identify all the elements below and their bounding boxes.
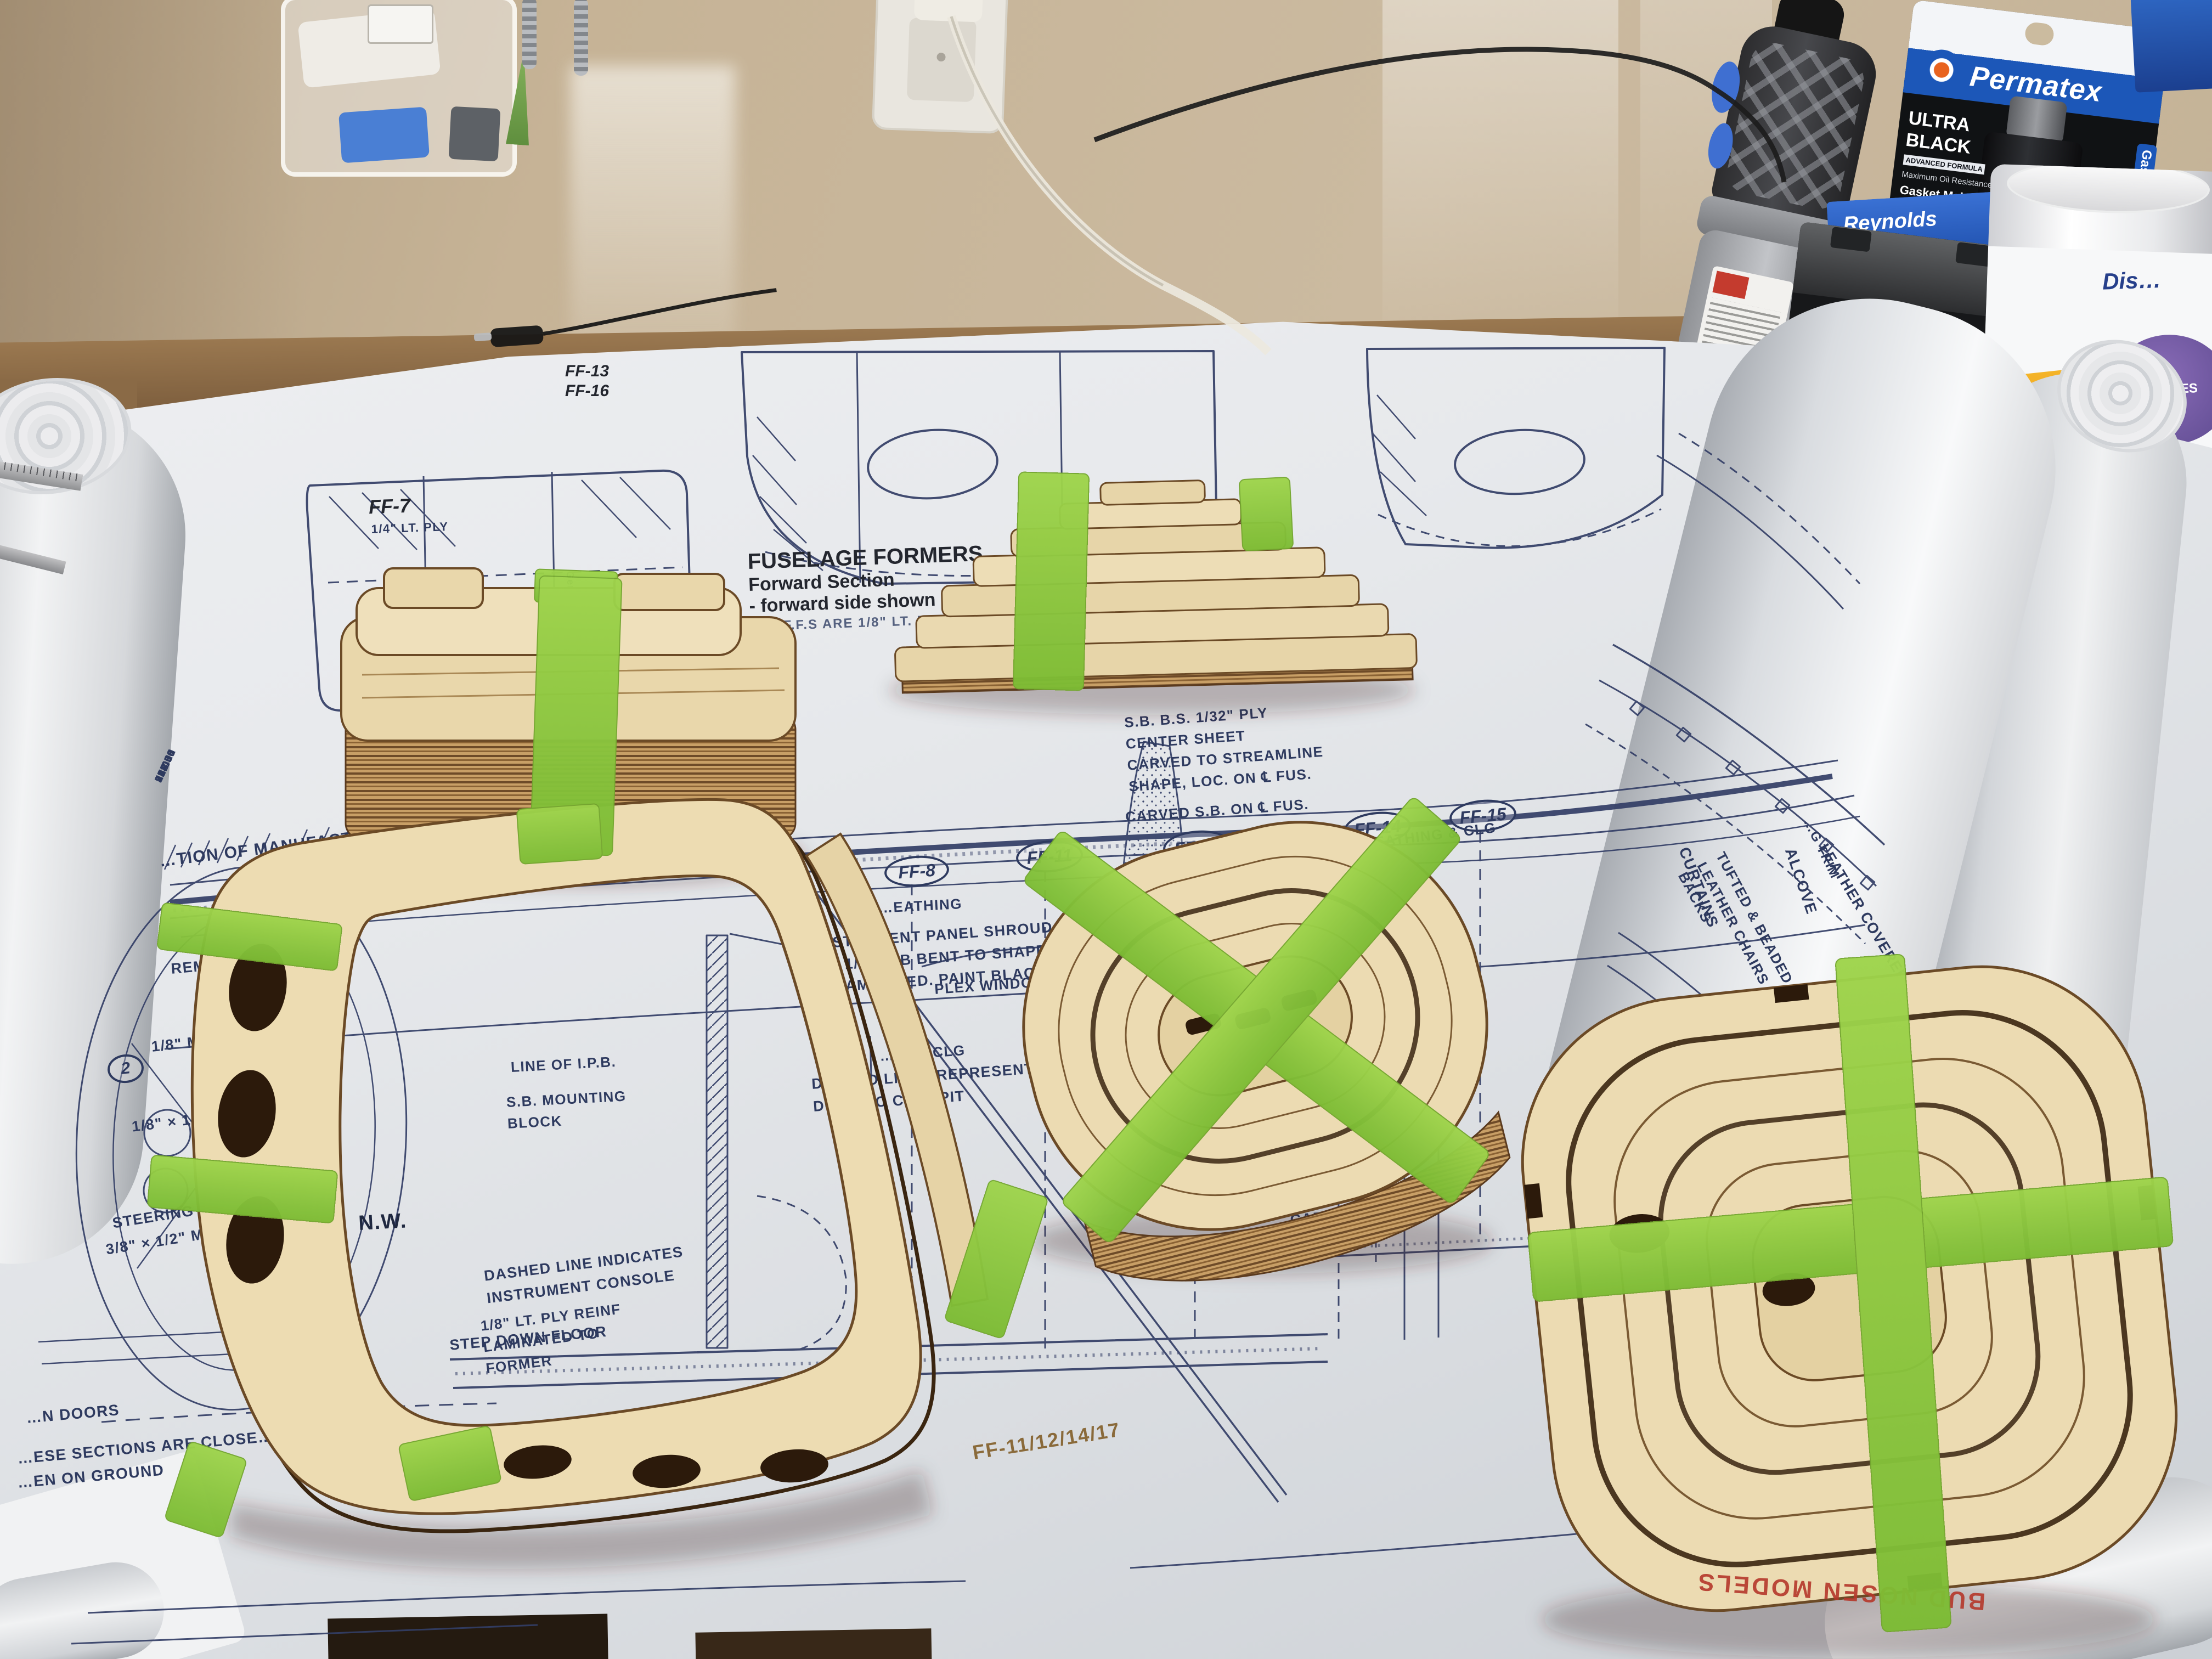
workshop-scene: Permatex Gasketing ULTRA BLACK Gasket Ma…	[0, 0, 2212, 1659]
sub-station: 17.25	[438, 605, 469, 621]
ann-nw: N.W.	[358, 1205, 408, 1239]
corner-ref-2: FF-16	[565, 382, 609, 400]
outlet-plug	[914, 0, 984, 22]
plan-title-block: FUSELAGE FORMERS Forward Section - forwa…	[747, 541, 1000, 637]
wall-drip-streak	[571, 66, 735, 362]
wipes-brand-fragment: Dis…	[2102, 267, 2162, 295]
sub-station: 35.75	[439, 636, 470, 652]
former-oval-ff8-label: FF-8	[898, 860, 936, 883]
rotary-tool-grip-pattern	[1723, 39, 1868, 213]
under-table-shadow-2	[695, 1628, 932, 1659]
storage-bin	[281, 0, 517, 177]
wall-streak-1	[1383, 0, 1618, 357]
section-label-ff7: FF-7	[368, 494, 410, 519]
hanging-screw-2	[574, 0, 588, 76]
bin-contents-blue	[338, 107, 430, 163]
sub-station: 26.50	[438, 620, 469, 637]
power-outlet	[872, 0, 1009, 134]
bin-contents-dark	[449, 106, 501, 162]
corner-ref-1: FF-13	[565, 362, 609, 381]
under-table-shadow-1	[328, 1614, 608, 1659]
section-ply-note: 1/4" LT. PLY	[371, 517, 449, 538]
ann-sheathing-fragment: …EATHING	[878, 893, 963, 919]
hanging-screw-1	[522, 0, 537, 69]
ann-sb-mounting: S.B. MOUNTING BLOCK	[506, 1086, 628, 1135]
sub-station: 45.00	[439, 652, 470, 668]
ann-center-sheet: S.B. B.S. 1/32" PLY CENTER SHEET CARVED …	[1124, 698, 1325, 798]
former-oval-2-label: 2	[120, 1059, 131, 1079]
blue-box	[2131, 0, 2212, 93]
former-oval-ff11-label: FF-11	[1026, 845, 1073, 868]
sub-station-numbers: 17.25 26.50 35.75 45.00	[438, 605, 470, 668]
bin-label-card	[368, 4, 433, 44]
former-oval-ff12-label: FF-12	[1173, 836, 1222, 859]
wipes-cap	[2006, 164, 2210, 217]
rotary-tool-label-stripe	[1712, 270, 1749, 299]
